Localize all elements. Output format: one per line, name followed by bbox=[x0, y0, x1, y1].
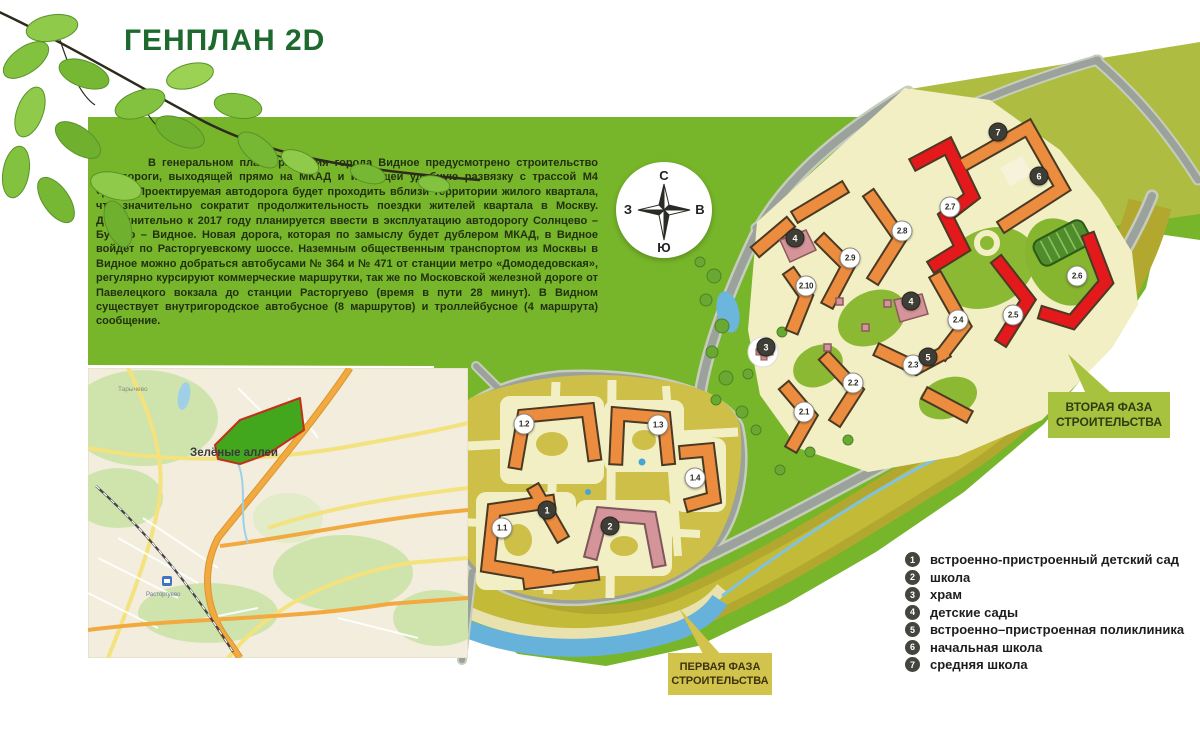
legend-number-badge: 6 bbox=[905, 640, 920, 655]
compass-north-label: С bbox=[659, 168, 669, 183]
page-title: ГЕНПЛАН 2D bbox=[124, 24, 325, 58]
phase2-callout: ВТОРАЯ ФАЗА СТРОИТЕЛЬСТВА bbox=[1048, 392, 1170, 438]
phase2-callout-line1: ВТОРАЯ ФАЗА bbox=[1066, 400, 1153, 415]
legend-label: встроенно–пристроенная поликлиника bbox=[930, 622, 1184, 637]
map-area-label: Зелёные аллеи bbox=[190, 447, 278, 459]
legend-number-badge: 2 bbox=[905, 570, 920, 585]
phase2-callout-line2: СТРОИТЕЛЬСТВА bbox=[1056, 415, 1162, 430]
legend-item-4: 4детские сады bbox=[905, 604, 1200, 622]
phase1-callout-line1: ПЕРВАЯ ФАЗА bbox=[680, 660, 761, 674]
legend-label: храм bbox=[930, 587, 962, 602]
map-inset bbox=[68, 368, 483, 658]
legend-label: начальная школа bbox=[930, 640, 1042, 655]
legend-number-badge: 4 bbox=[905, 605, 920, 620]
phase1-callout: ПЕРВАЯ ФАЗА СТРОИТЕЛЬСТВА bbox=[668, 653, 772, 695]
compass-west-label: З bbox=[624, 202, 632, 217]
legend-number-badge: 3 bbox=[905, 587, 920, 602]
map-station-label: Расторгуево bbox=[146, 592, 180, 598]
fountain bbox=[639, 459, 646, 466]
legend-label: средняя школа bbox=[930, 657, 1028, 672]
legend-number-badge: 7 bbox=[905, 657, 920, 672]
genplan-page: ГЕНПЛАН 2D В генеральном плане развития … bbox=[0, 0, 1200, 733]
fountain bbox=[585, 489, 591, 495]
legend-number-badge: 1 bbox=[905, 552, 920, 567]
phase1-callout-line2: СТРОИТЕЛЬСТВА bbox=[671, 674, 768, 688]
legend-item-6: 6начальная школа bbox=[905, 639, 1200, 657]
legend-item-3: 3храм bbox=[905, 586, 1200, 604]
legend-item-7: 7средняя школа bbox=[905, 656, 1200, 674]
compass-rose: С Ю З В bbox=[616, 162, 712, 258]
legend-item-1: 1встроенно-пристроенный детский сад bbox=[905, 551, 1200, 569]
legend: 1встроенно-пристроенный детский сад2школ… bbox=[905, 551, 1200, 674]
legend-item-5: 5встроенно–пристроенная поликлиника bbox=[905, 621, 1200, 639]
compass-south-label: Ю bbox=[657, 240, 670, 255]
legend-item-2: 2школа bbox=[905, 569, 1200, 587]
map-town-label: Тарычево bbox=[118, 386, 148, 393]
legend-label: встроенно-пристроенный детский сад bbox=[930, 552, 1179, 567]
legend-label: детские сады bbox=[930, 605, 1018, 620]
compass-east-label: В bbox=[695, 202, 704, 217]
legend-number-badge: 5 bbox=[905, 622, 920, 637]
legend-label: школа bbox=[930, 570, 970, 585]
